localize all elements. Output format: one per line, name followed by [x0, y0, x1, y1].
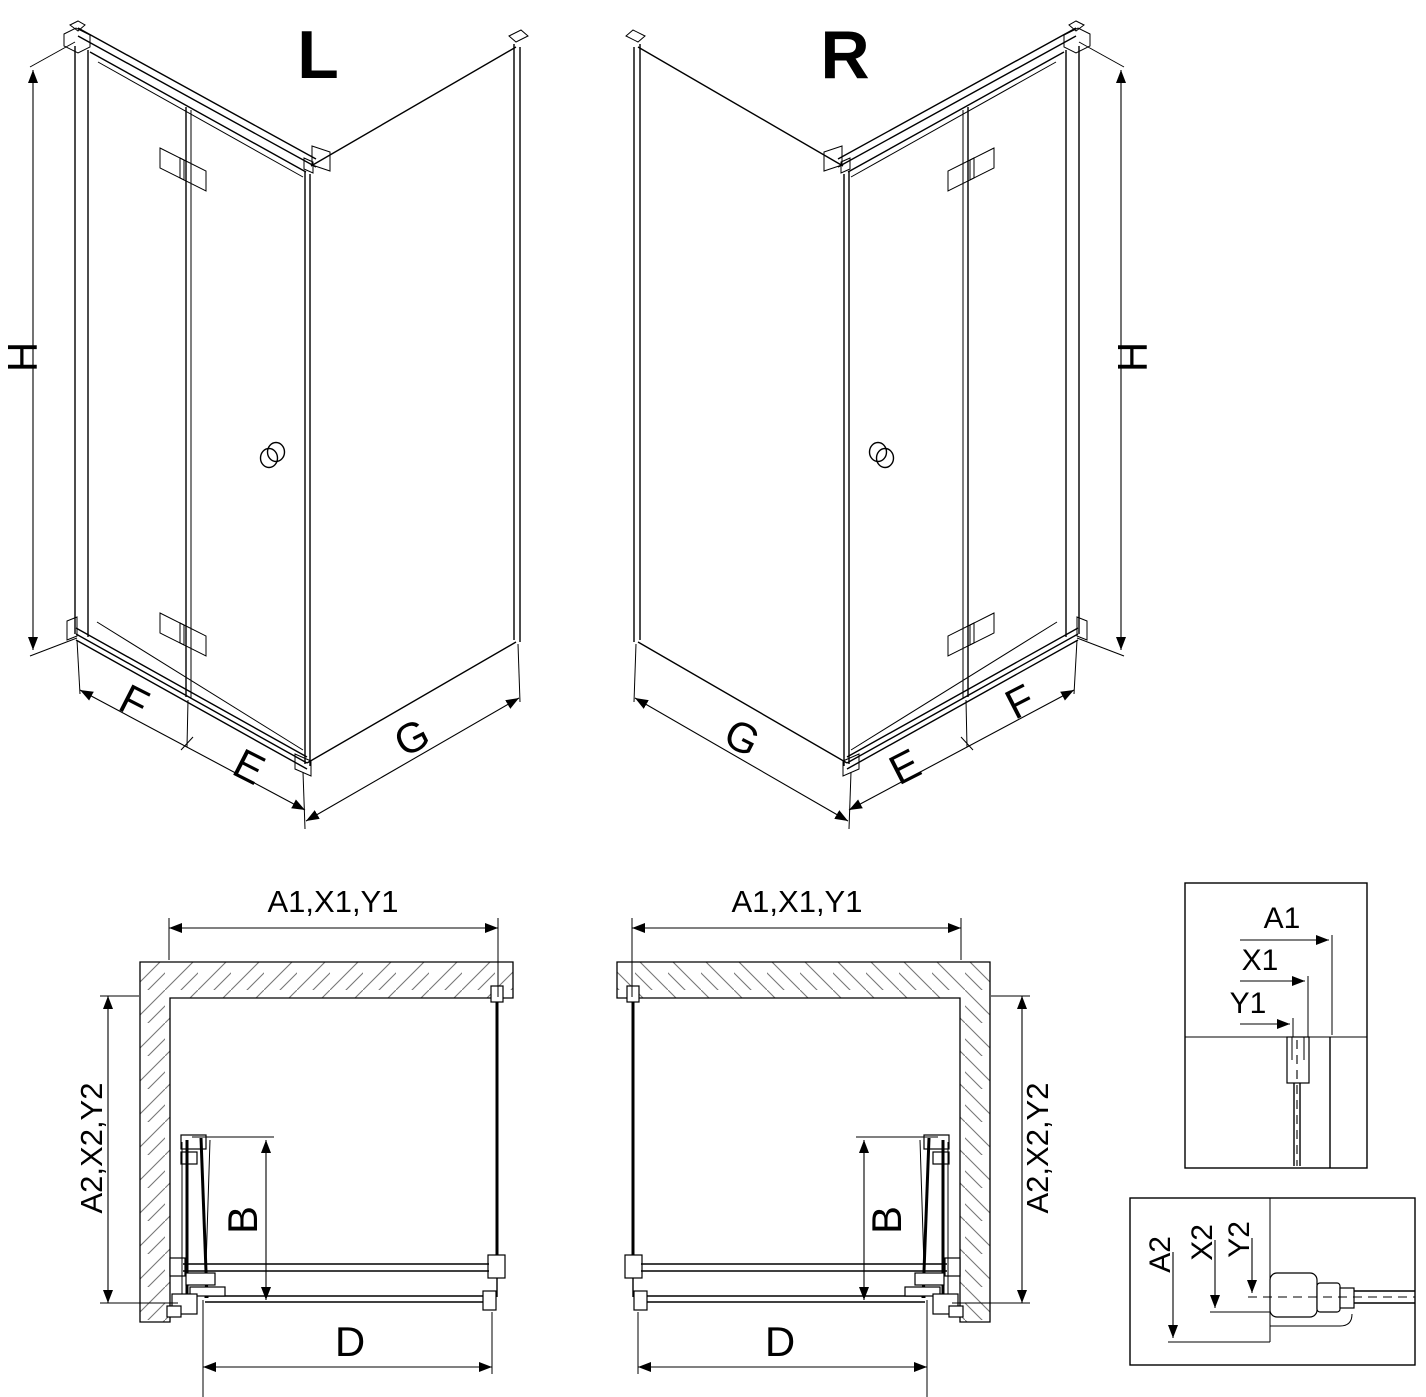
dim-label-fixed-left: E	[226, 739, 272, 794]
plan-left-projection-label: B	[219, 1206, 266, 1234]
detail-y2-label: Y2	[1223, 1221, 1256, 1258]
detail-box-depth: A2 X2 Y2	[1130, 1198, 1415, 1365]
detail-a2-label: A2	[1144, 1236, 1177, 1273]
dim-label-height-right: H	[1109, 342, 1156, 372]
dim-label-height-left: H	[0, 342, 46, 372]
plan-left-width-label: A1,X1,Y1	[268, 884, 399, 919]
detail-x1-label: X1	[1242, 944, 1279, 977]
plan-view-right: A1,X1,Y1 A2,X2,Y2 B D	[617, 884, 1055, 1397]
plan-right-projection-label: B	[863, 1206, 910, 1234]
shower-enclosure-drawing: L H F E G R H F E G A1,X1,Y1 A2,X2,Y2 B …	[0, 0, 1426, 1397]
variant-label-right: R	[820, 17, 869, 93]
dim-label-side-right: G	[717, 709, 767, 766]
variant-label-left: L	[297, 17, 339, 93]
isometric-view-left: L H F E G	[0, 17, 528, 829]
detail-y1-label: Y1	[1230, 987, 1267, 1020]
detail-profile-section-2	[1248, 1273, 1415, 1326]
dim-label-fixed-right: E	[882, 739, 928, 794]
plan-left-entry-label: D	[335, 1318, 365, 1365]
isometric-view-right: R H F E G	[626, 17, 1156, 829]
technical-drawing-page: L H F E G R H F E G A1,X1,Y1 A2,X2,Y2 B …	[0, 0, 1426, 1397]
plan-view-left: A1,X1,Y1 A2,X2,Y2 B D	[74, 884, 513, 1397]
dim-label-side-left: G	[387, 709, 437, 766]
detail-box-width: A1 X1 Y1	[1185, 883, 1367, 1168]
plan-left-depth-label: A2,X2,Y2	[74, 1083, 109, 1214]
detail-a1-label: A1	[1264, 902, 1301, 935]
dim-label-door-right: F	[998, 675, 1042, 729]
detail-profile-section	[1287, 1037, 1309, 1166]
plan-right-width-label: A1,X1,Y1	[732, 884, 863, 919]
plan-right-entry-label: D	[765, 1318, 795, 1365]
dim-label-door-left: F	[112, 675, 156, 729]
detail-x2-label: X2	[1186, 1224, 1219, 1261]
plan-right-depth-label: A2,X2,Y2	[1020, 1083, 1055, 1214]
